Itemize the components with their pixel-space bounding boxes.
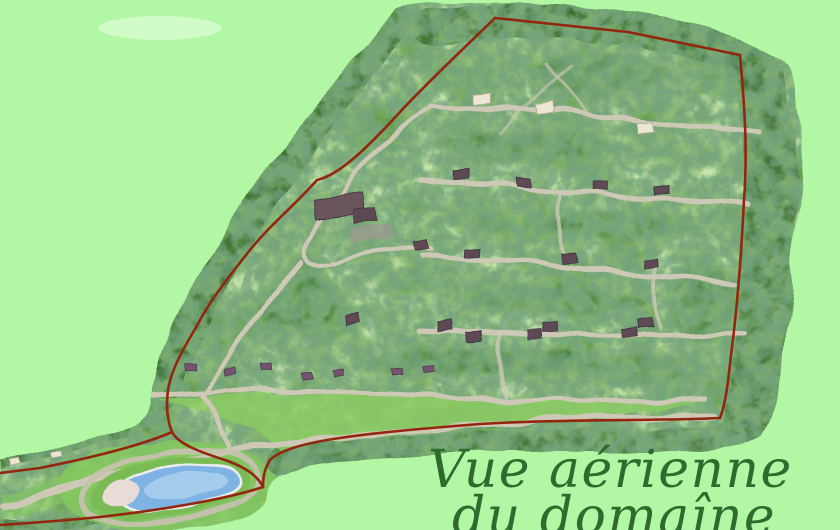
chalet [643, 256, 658, 266]
chalet-small [333, 368, 345, 376]
chalet [516, 177, 531, 187]
chalet [438, 321, 453, 331]
chalet-white [475, 93, 492, 105]
chalet [468, 331, 483, 341]
chalet [343, 317, 358, 327]
outbuilding [10, 459, 21, 467]
chalet [623, 328, 638, 338]
chalet [543, 322, 558, 332]
chalet [563, 253, 578, 263]
chalet-white [538, 101, 555, 113]
chalet-small [390, 366, 402, 374]
chalet-white [639, 122, 656, 133]
chalet [655, 185, 670, 195]
chalet [466, 246, 481, 256]
chalet-small [184, 364, 196, 372]
outbuilding [50, 451, 61, 459]
chalet-small [225, 366, 237, 374]
chalet [595, 181, 610, 191]
caption-line-2: du domaîne [452, 487, 776, 530]
aerial-view-figure: Vue aérienne du domaîne [0, 0, 840, 530]
chalet-small [422, 363, 434, 371]
chalet-small [300, 372, 312, 380]
chalet [528, 329, 543, 339]
chalet [638, 319, 653, 329]
background-smudge [98, 16, 222, 40]
aerial-photo-svg: Vue aérienne du domaîne [0, 0, 840, 530]
chalet [413, 239, 428, 249]
chalet [453, 169, 468, 179]
chalet-small [263, 363, 275, 371]
